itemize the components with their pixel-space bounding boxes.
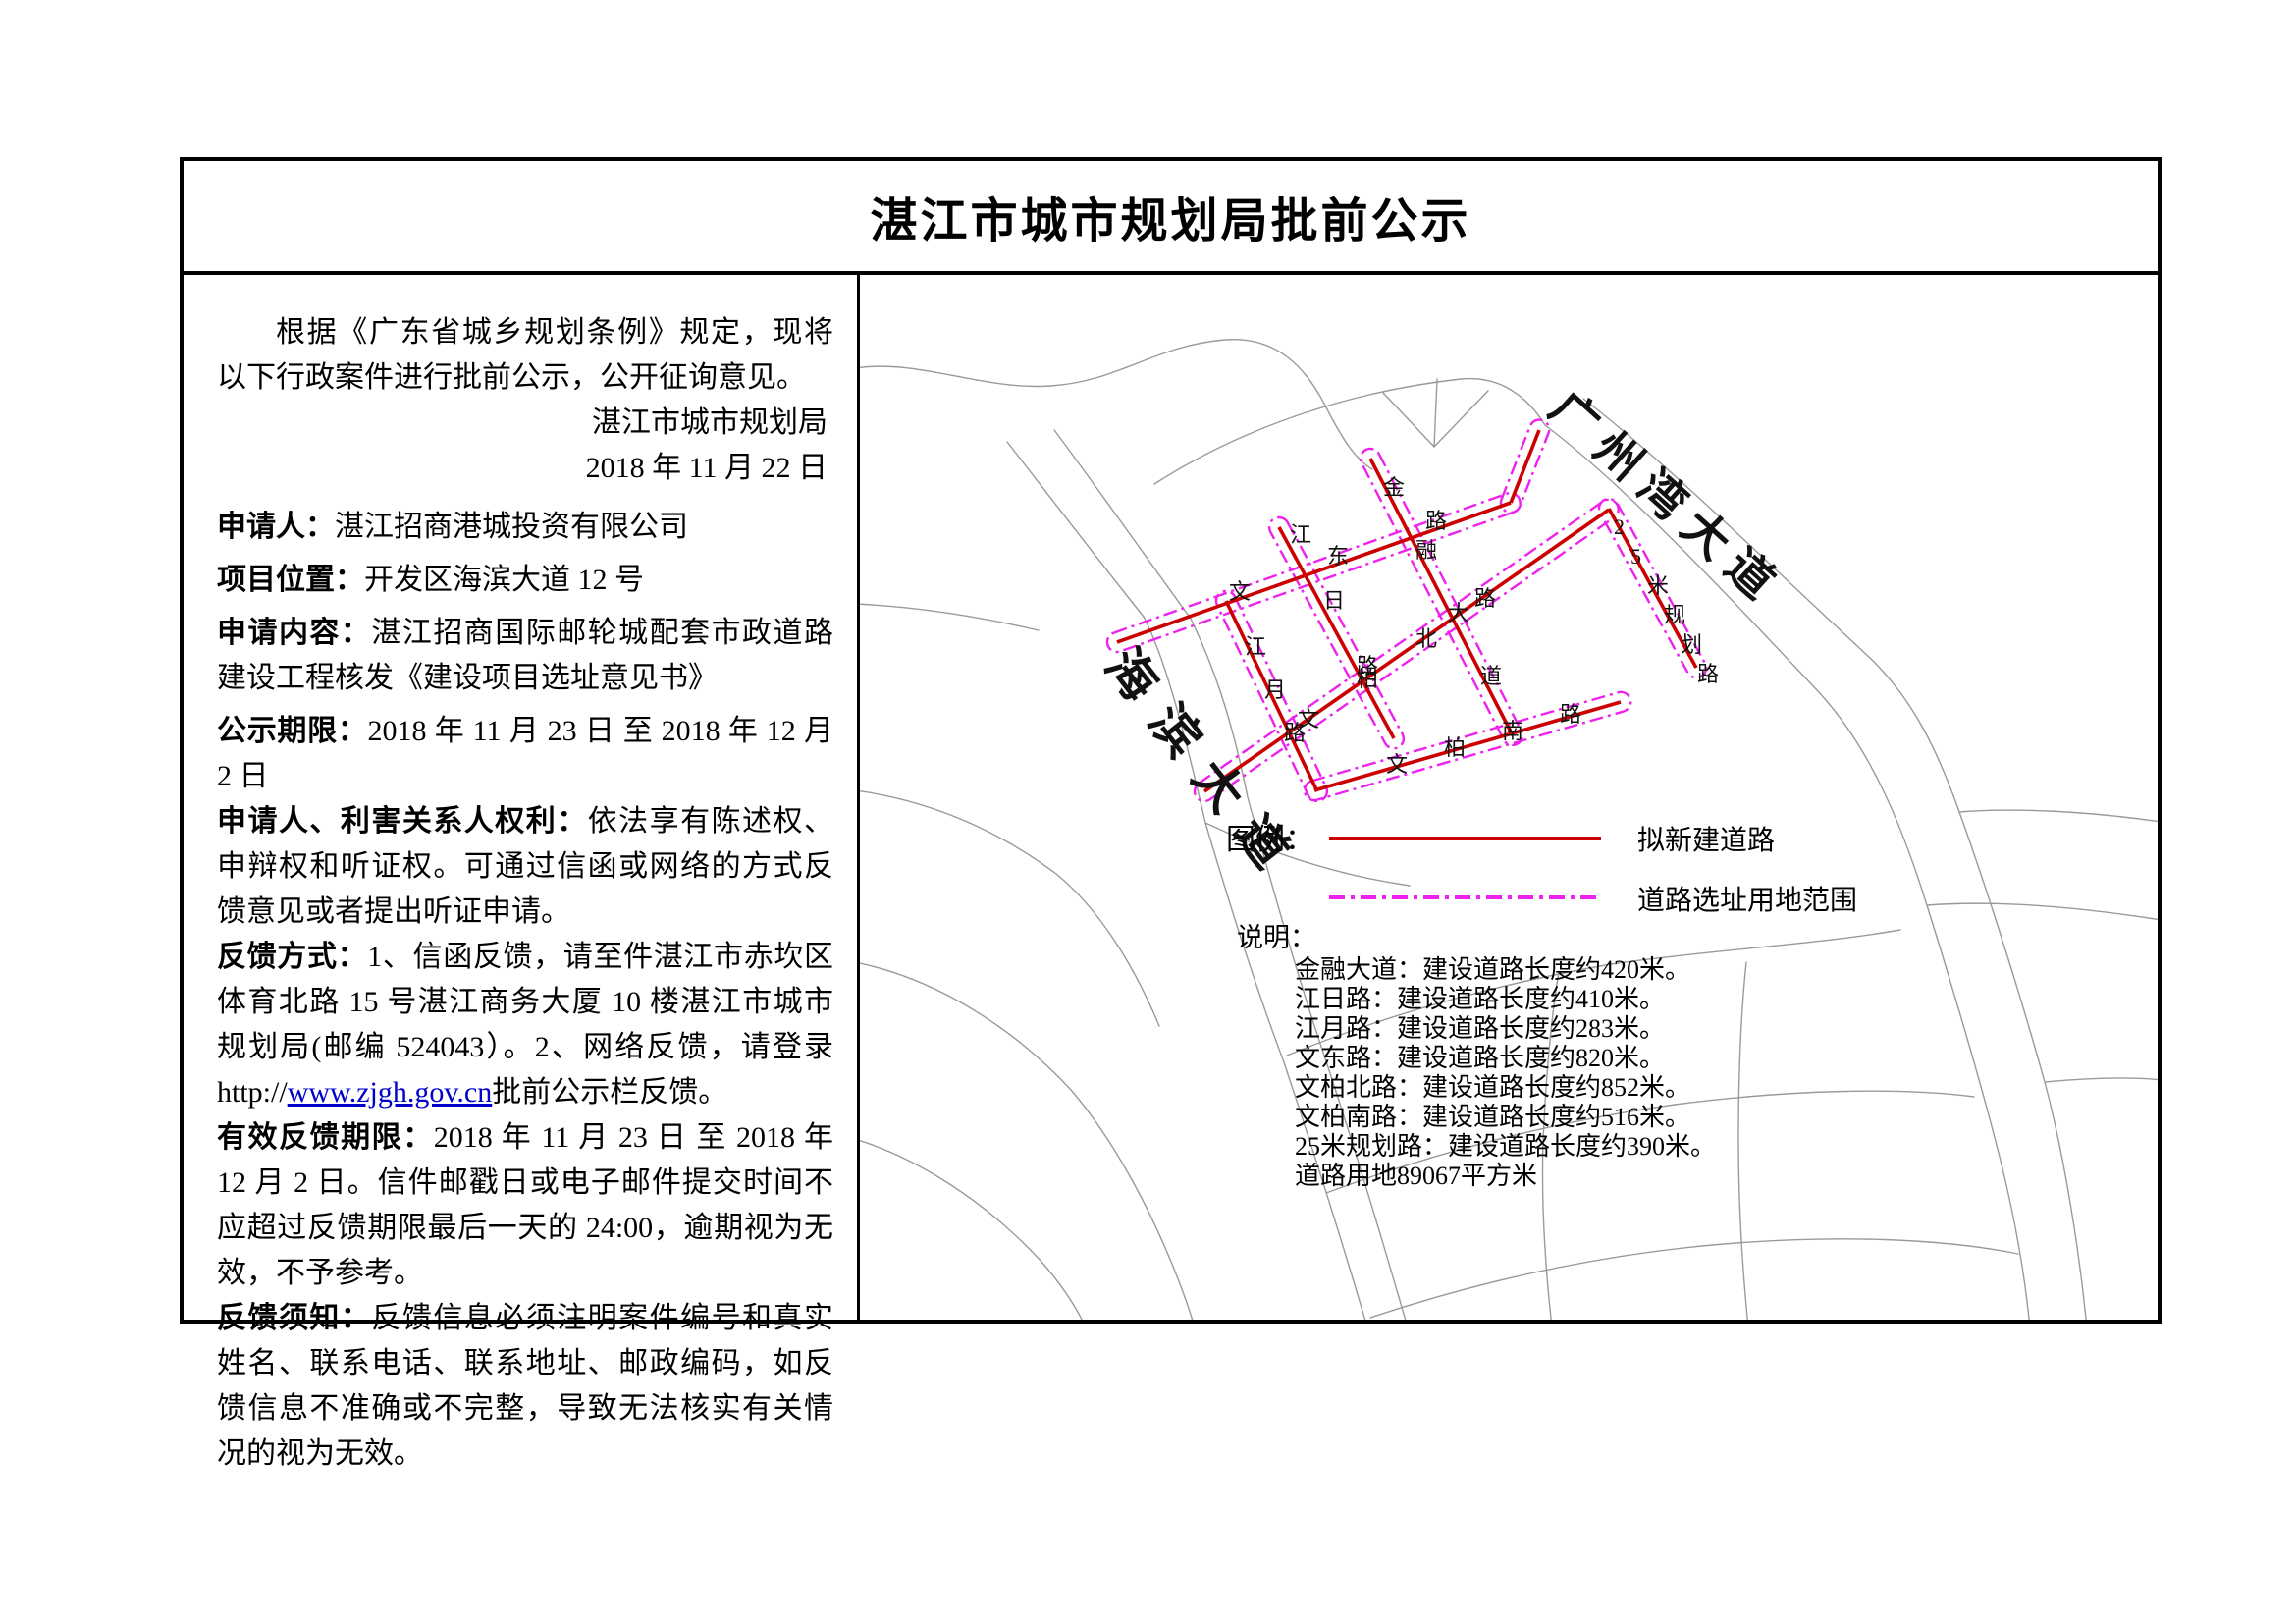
note-wenbai-south: 文柏南路：建设道路长度约516米。 <box>1295 1103 1690 1131</box>
date-line: 2018 年 11 月 22 日 <box>217 446 833 491</box>
road-name-char: 南 <box>1502 719 1523 743</box>
road-name-char: 路 <box>1474 586 1496 611</box>
location-value: 开发区海滨大道 12 号 <box>364 564 644 596</box>
road-name-char: 金 <box>1383 475 1405 500</box>
feedback-post: 批前公示栏反馈。 <box>492 1076 727 1109</box>
period-line: 公示期限：2018 年 11 月 23 日 至 2018 年 12 月 2 日 <box>217 709 833 799</box>
road-name-labels: 金融大道江日路江月路文东路文柏北路文柏南路25米规划路 <box>1229 475 1719 777</box>
road-name-char: 规 <box>1664 603 1685 627</box>
content-label: 申请内容： <box>217 617 371 649</box>
page-title: 湛江市城市规划局批前公示 <box>870 182 1470 250</box>
road-name-char: 东 <box>1327 544 1349 568</box>
applicant-label: 申请人： <box>217 511 335 543</box>
note-total-area: 道路用地89067平方米 <box>1295 1162 1537 1190</box>
location-label: 项目位置： <box>217 564 364 596</box>
notes-line: 反馈须知：反馈信息必须注明案件编号和真实姓名、联系电话、联系地址、邮政编码，如反… <box>217 1296 833 1477</box>
feedback-line: 反馈方式：1、信函反馈，请至件湛江市赤坎区体育北路 15 号湛江商务大厦 10 … <box>217 935 833 1115</box>
applicant-line: 申请人：湛江招商港城投资有限公司 <box>217 505 833 550</box>
note-25m-road: 25米规划路：建设道路长度约390米。 <box>1295 1132 1716 1161</box>
intro-paragraph: 根据《广东省城乡规划条例》规定，现将以下行政案件进行批前公示，公开征询意见。 <box>217 310 833 401</box>
road-name-char: 路 <box>1697 662 1719 686</box>
title-bar: 湛江市城市规划局批前公示 <box>184 161 2158 275</box>
road-name-char: 柏 <box>1444 735 1466 760</box>
note-jinrong: 金融大道：建设道路长度约420米。 <box>1295 955 1690 984</box>
road-name-char: 米 <box>1647 573 1669 598</box>
note-wenbai-north: 文柏北路：建设道路长度约852米。 <box>1295 1073 1690 1102</box>
road-name-char: 月 <box>1264 677 1286 702</box>
rights-label: 申请人、利害关系人权利： <box>217 805 588 838</box>
note-wendong: 文东路：建设道路长度约820米。 <box>1295 1044 1665 1072</box>
road-name-char: 5 <box>1630 544 1641 568</box>
road-name-char: 融 <box>1415 538 1437 563</box>
location-line: 项目位置：开发区海滨大道 12 号 <box>217 558 833 603</box>
zjgh-website-link[interactable]: www.zjgh.gov.cn <box>288 1076 493 1109</box>
notes-label: 反馈须知： <box>217 1302 371 1334</box>
road-name-char: 路 <box>1560 702 1581 727</box>
note-jiangri: 江日路：建设道路长度约410米。 <box>1295 985 1665 1013</box>
road-name-char: 柏 <box>1357 667 1378 691</box>
applicant-value: 湛江招商港城投资有限公司 <box>335 511 688 543</box>
road-name-char: 江 <box>1290 522 1311 547</box>
legend-new-road-label: 拟新建道路 <box>1637 825 1775 856</box>
legend-boundary-label: 道路选址用地范围 <box>1637 885 1857 916</box>
planning-map-panel: 广州湾大道 海滨大道 图例： 拟新建道路 道路选址用地范围 说明： 金融大道：建… <box>860 275 2158 1320</box>
agency-line: 湛江市城市规划局 <box>217 401 833 446</box>
legend: 图例： 拟新建道路 道路选址用地范围 <box>1226 824 1857 916</box>
road-name-char: 江 <box>1245 634 1266 659</box>
road-name-char: 路 <box>1425 509 1447 533</box>
rights-line: 申请人、利害关系人权利：依法享有陈述权、申辩权和听证权。可通过信函或网络的方式反… <box>217 799 833 935</box>
road-name-char: 北 <box>1415 626 1437 651</box>
notice-board: 湛江市城市规划局批前公示 根据《广东省城乡规划条例》规定，现将以下行政案件进行批… <box>180 157 2162 1324</box>
road-name-char: 文 <box>1298 707 1319 731</box>
road-name-char: 日 <box>1323 588 1345 613</box>
road-name-char: 大 <box>1448 601 1469 625</box>
period-label: 公示期限： <box>217 715 368 747</box>
deadline-label: 有效反馈期限： <box>217 1121 434 1154</box>
note-jiangyue: 江月路：建设道路长度约283米。 <box>1295 1014 1665 1043</box>
planning-map: 广州湾大道 海滨大道 图例： 拟新建道路 道路选址用地范围 说明： 金融大道：建… <box>860 275 2158 1320</box>
feedback-label: 反馈方式： <box>217 941 367 973</box>
content-line: 申请内容：湛江招商国际邮轮城配套市政道路建设工程核发《建设项目选址意见书》 <box>217 611 833 701</box>
road-name-char: 文 <box>1386 752 1408 777</box>
road-name-char: 道 <box>1480 664 1502 688</box>
content-row: 根据《广东省城乡规划条例》规定，现将以下行政案件进行批前公示，公开征询意见。 湛… <box>184 275 2158 1320</box>
road-name-char: 文 <box>1229 579 1251 604</box>
road-name-char: 划 <box>1681 632 1702 657</box>
map-notes-title: 说明： <box>1237 923 1316 952</box>
page: { "title": "湛江市城市规划局批前公示", "notice": { "… <box>0 0 2296 1624</box>
deadline-line: 有效反馈期限：2018 年 11 月 23 日 至 2018 年 12 月 2 … <box>217 1115 833 1296</box>
road-name-char: 2 <box>1614 514 1625 539</box>
notice-text-column: 根据《广东省城乡规划条例》规定，现将以下行政案件进行批前公示，公开征询意见。 湛… <box>184 275 860 1320</box>
legend-title: 图例： <box>1226 824 1314 856</box>
map-notes: 说明： 金融大道：建设道路长度约420米。 江日路：建设道路长度约410米。 江… <box>1237 923 1716 1190</box>
